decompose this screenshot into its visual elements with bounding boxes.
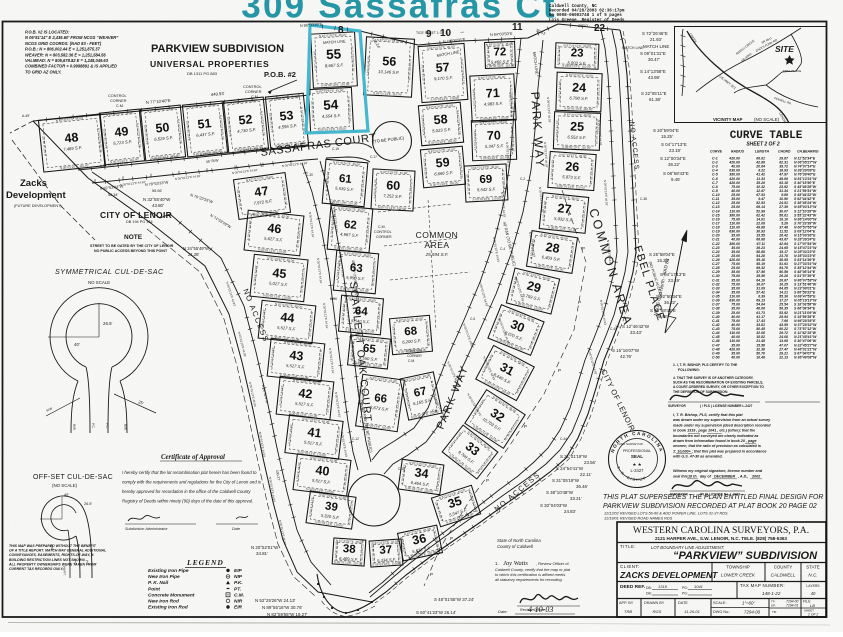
svg-text:P: P <box>486 478 489 483</box>
svg-text:P: P <box>450 536 453 541</box>
svg-text:7,252 S.F.: 7,252 S.F. <box>383 193 402 199</box>
svg-text:R/W: R/W <box>123 424 128 431</box>
svg-text:40.00: 40.00 <box>730 355 740 359</box>
svg-text:55.06′: 55.06′ <box>152 189 163 193</box>
svg-text:A 10°14′ 44.93′: A 10°14′ 44.93′ <box>555 120 560 141</box>
svg-text:36.22′: 36.22′ <box>664 300 676 305</box>
svg-text:N 82°59′55″W 19.27′: N 82°59′55″W 19.27′ <box>267 612 308 617</box>
svg-text:TITLE:: TITLE: <box>620 544 636 549</box>
svg-text:comply with the requirements a: comply with the requirements and regulat… <box>122 480 262 485</box>
svg-text:DATE: DATE <box>678 601 688 605</box>
svg-text:LAYERS: LAYERS <box>806 584 820 588</box>
svg-text:9.45′: 9.45′ <box>658 314 668 319</box>
svg-text:S 30°04′03″W: S 30°04′03″W <box>540 503 568 508</box>
svg-text:P.C.: P.C. <box>91 423 95 429</box>
svg-text:CONTROL: CONTROL <box>243 85 262 89</box>
svg-text:RADIUS: RADIUS <box>731 150 745 154</box>
svg-text:DB:: DB: <box>646 592 652 596</box>
svg-text:day of: day of <box>700 475 712 479</box>
svg-text:5,347 S.F.: 5,347 S.F. <box>485 143 504 149</box>
svg-text:1″=60′: 1″=60′ <box>742 601 754 606</box>
svg-text:PROFESSIONAL: PROFESSIONAL <box>623 449 651 453</box>
svg-text:40′: 40′ <box>64 493 69 497</box>
svg-text:40: 40 <box>315 463 331 479</box>
svg-text:LOWER CREEK: LOWER CREEK <box>721 573 756 578</box>
svg-text:SYMMETRICAL CUL-DE-SAC: SYMMETRICAL CUL-DE-SAC <box>55 267 164 276</box>
svg-text:22.11′: 22.11′ <box>580 472 592 477</box>
svg-text:S 12°00′34″E: S 12°00′34″E <box>660 156 686 161</box>
svg-text:57: 57 <box>435 60 450 75</box>
svg-text:7294-01: 7294-01 <box>786 604 799 608</box>
svg-text:Recorded 04/28/2003 02:36:1: Recorded 04/28/2003 02:36:17pm <box>549 9 625 14</box>
svg-text:148-1-22: 148-1-22 <box>762 591 781 596</box>
svg-text:C-10: C-10 <box>398 467 405 471</box>
svg-text:COMBINED FACTOR = 0.9998891 &: COMBINED FACTOR = 0.9998891 & IS APPLIED <box>25 64 117 69</box>
svg-text:Witness my original signature,: Witness my original signature, license n… <box>673 469 763 473</box>
svg-text:C.M.: C.M. <box>116 104 124 108</box>
svg-text:26: 26 <box>565 159 580 174</box>
svg-text:CURVE: CURVE <box>710 150 723 154</box>
svg-text:P.K.: P.K. <box>234 580 243 586</box>
svg-text:New Iron Pipe: New Iron Pipe <box>148 574 180 580</box>
svg-text:THIS MAP WAS PREPARED WITHOUT: THIS MAP WAS PREPARED WITHOUT THE BENEFI… <box>9 544 97 548</box>
svg-text:A COURT-ORDERED SURVEY, OR OTH: A COURT-ORDERED SURVEY, OR OTHER EXCEPTI… <box>673 385 764 389</box>
svg-text:I hereby certify that the lot: I hereby certify that the lot recombinat… <box>122 470 257 475</box>
svg-text:SCALE:: SCALE: <box>713 601 727 605</box>
svg-text:Zacks: Zacks <box>20 178 47 189</box>
svg-text:Certificate of Approval: Certificate of Approval <box>161 454 225 461</box>
svg-text:New Iron Rod: New Iron Rod <box>148 599 180 605</box>
svg-text:2 OF 2: 2 OF 2 <box>807 613 818 617</box>
svg-text:C-40: C-40 <box>610 327 617 331</box>
svg-text:SURVEYOR: SURVEYOR <box>668 404 687 408</box>
svg-text:→: → <box>459 29 465 35</box>
svg-text:boundaries not surveyed are cl: boundaries not surveyed are clearly indi… <box>673 434 758 438</box>
svg-text:2121 HARPER AVE., S.W. LE: 2121 HARPER AVE., S.W. LENOIR, N.C. TELE… <box>655 536 787 541</box>
svg-text:S 25°58′04″E: S 25°58′04″E <box>649 252 675 257</box>
svg-text:TICE SHEET 1 OF 2): TICE SHEET 1 OF 2) <box>416 31 448 35</box>
svg-text:all statutory requirements for: all statutory requirements for recording… <box>495 577 563 582</box>
svg-text:S 38°10′48″W: S 38°10′48″W <box>546 490 574 495</box>
svg-text:DECEMBER: DECEMBER <box>714 475 735 479</box>
svg-text:C.M.: C.M. <box>234 592 244 598</box>
svg-text:68: 68 <box>404 325 418 338</box>
svg-text:C.M.: C.M. <box>378 225 386 229</box>
svg-text:51: 51 <box>197 116 212 131</box>
svg-text:Date:: Date: <box>498 609 508 614</box>
svg-text:34: 34 <box>414 465 430 481</box>
svg-text:( / PLS ) LICENSE NUMBER L-242: ( / PLS ) LICENSE NUMBER L-2427 <box>700 404 753 408</box>
svg-text:66: 66 <box>373 392 387 406</box>
svg-text:4-10-03: 4-10-03 <box>528 605 553 614</box>
svg-text:DB:: DB: <box>646 586 652 590</box>
svg-text:seal this: seal this <box>673 475 688 479</box>
svg-text:BUILDING RESTRICTION LINES NOT: BUILDING RESTRICTION LINES NOT SHOWN. <box>9 558 86 562</box>
svg-text:24: 24 <box>572 80 586 94</box>
svg-text:22: 22 <box>594 23 606 34</box>
svg-text:P.O.B. #2 IS LOCATED:: P.O.B. #2 IS LOCATED: <box>25 30 70 35</box>
svg-text:FOLLOWING:: FOLLOWING: <box>678 368 700 372</box>
svg-text:N 20°52′01″W: N 20°52′01″W <box>251 545 279 550</box>
svg-text:CORNER: CORNER <box>110 99 127 103</box>
svg-text:39: 39 <box>324 500 338 514</box>
svg-text:50: 50 <box>155 120 170 135</box>
svg-text:STATE: STATE <box>806 565 820 570</box>
svg-text:S 08°58′43″E: S 08°58′43″E <box>650 308 676 313</box>
svg-text:A 10°14′ 44.93′: A 10°14′ 44.93′ <box>486 45 491 66</box>
svg-text:TOWNSHIP: TOWNSHIP <box>726 565 750 570</box>
svg-text:33.21′: 33.21′ <box>570 496 582 501</box>
svg-text:MATCH LINE: MATCH LINE <box>622 46 644 50</box>
svg-text:(FUTURE DEVELOPMENT): (FUTURE DEVELOPMENT) <box>14 204 62 208</box>
svg-text:Caldwell County, NC: Caldwell County, NC <box>549 4 597 9</box>
svg-text:1. I, T. R. BISHOP, PLS CERT: 1. I, T. R. BISHOP, PLS CERTIFY TO THE <box>673 363 738 367</box>
svg-text:hereby approved for recordatio: hereby approved for recordation in the o… <box>122 489 251 494</box>
svg-text:5,542 S.F.: 5,542 S.F. <box>477 186 496 192</box>
svg-text:, A.D.,: , A.D., <box>737 475 748 479</box>
svg-text:SHEET 2 OF 2: SHEET 2 OF 2 <box>746 142 780 148</box>
svg-text:CHORD: CHORD <box>778 150 791 154</box>
svg-text:S 21°01′19″W: S 21°01′19″W <box>560 454 588 459</box>
svg-text:43: 43 <box>289 348 304 363</box>
svg-text:7294-00: 7294-00 <box>744 610 761 615</box>
svg-text:LEGEND: LEGEND <box>186 558 224 567</box>
svg-text:A 10°14′ 44.93′: A 10°14′ 44.93′ <box>556 45 561 66</box>
svg-text:S 15°16′07″W: S 15°16′07″W <box>612 348 640 353</box>
svg-text:L-2427: L-2427 <box>630 468 644 473</box>
svg-text:23.19′: 23.19′ <box>669 148 681 153</box>
svg-text:S 31°05′19″W: S 31°05′19″W <box>552 478 580 483</box>
svg-text:4,983 S.F.: 4,983 S.F. <box>484 101 503 107</box>
svg-text:(NO SCALE): (NO SCALE) <box>754 117 780 122</box>
svg-text:C-12: C-12 <box>352 437 359 441</box>
svg-text:N 32°55′40″W: N 32°55′40″W <box>143 197 171 202</box>
svg-text:70: 70 <box>487 128 501 142</box>
svg-text:WEAVER: N = 803,582.36 E = 1,2: WEAVER: N = 803,582.36 E = 1,251,584.56 <box>25 52 106 57</box>
svg-text:TRB: TRB <box>624 609 632 614</box>
svg-text:37: 37 <box>379 544 393 557</box>
svg-text:ZACKS DEVELOPMENT: ZACKS DEVELOPMENT <box>619 570 718 580</box>
svg-text:P: P <box>578 300 581 305</box>
svg-text:23: 23 <box>570 47 583 59</box>
svg-text:WESTERN CAROLINA SURVEYORS, P.: WESTERN CAROLINA SURVEYORS, P.A. <box>633 525 809 536</box>
svg-text:CH.BEARING: CH.BEARING <box>797 150 819 154</box>
svg-text:S 24°54′41″W: S 24°54′41″W <box>556 466 584 471</box>
svg-text:53: 53 <box>279 108 294 123</box>
svg-text:11: 11 <box>512 22 523 33</box>
svg-text:DB 1311 PG 883: DB 1311 PG 883 <box>187 71 218 76</box>
svg-text:85.10′: 85.10′ <box>578 24 589 28</box>
svg-text:1: 10,000+ ; that this plat wa: 1: 10,000+ ; that this plat was prepared… <box>673 449 767 453</box>
svg-text:1319: 1319 <box>658 584 668 589</box>
svg-text:44: 44 <box>280 310 295 325</box>
svg-text:TO GRID AZ ONLY.: TO GRID AZ ONLY. <box>25 69 62 74</box>
svg-text:EIP: EIP <box>234 568 243 574</box>
svg-text:CORNER: CORNER <box>245 90 262 94</box>
svg-text:42: 42 <box>298 386 313 401</box>
svg-text:“PARKVIEW” SUBDIVISION: “PARKVIEW” SUBDIVISION <box>673 550 818 562</box>
svg-text:DEED REF.: DEED REF. <box>620 584 645 590</box>
svg-text:Registry of Deeds within ninet: Registry of Deeds within ninety (90) day… <box>122 499 253 504</box>
svg-text:S 20°59′04″E: S 20°59′04″E <box>653 128 679 133</box>
svg-text:S 08°58′43″E: S 08°58′43″E <box>663 171 689 176</box>
svg-text:LENGTH: LENGTH <box>755 150 769 154</box>
svg-text:C.M.: C.M. <box>408 359 415 363</box>
svg-text:was drawn under my supervision: was drawn under my supervision from an a… <box>673 418 771 422</box>
svg-text:CURVE TABLE: CURVE TABLE <box>730 130 803 142</box>
svg-text:56.34′: 56.34′ <box>108 193 119 197</box>
svg-text:A-49′: A-49′ <box>22 114 30 118</box>
svg-text:State of North Carolina: State of North Carolina <box>497 538 541 543</box>
svg-text:P. K. Nail: P. K. Nail <box>148 580 169 586</box>
svg-text:65: 65 <box>362 343 377 356</box>
svg-text:47: 47 <box>254 184 270 200</box>
svg-text:RGS: RGS <box>653 609 662 614</box>
svg-text:★ ★: ★ ★ <box>632 462 642 467</box>
svg-text:I, T. R. Bishop, PLS, certify: I, T. R. Bishop, PLS, certify that this … <box>673 413 743 417</box>
svg-text:N 52°25′26″W 24.13′: N 52°25′26″W 24.13′ <box>255 598 296 603</box>
svg-text:CONTROL: CONTROL <box>108 94 127 98</box>
svg-text:CORNER: CORNER <box>376 235 392 239</box>
svg-text:S 04°17′13″E: S 04°17′13″E <box>661 142 687 147</box>
svg-text:12/19/01 REVISED ROAD NAMES RD: 12/19/01 REVISED ROAD NAMES RDS <box>604 517 673 521</box>
svg-text:NO SCALE: NO SCALE <box>88 280 110 285</box>
svg-text:Lois Greene, Register of Deeds: Lois Greene, Register of Deeds <box>549 18 625 23</box>
svg-text:S 22°05′11″E: S 22°05′11″E <box>641 91 667 96</box>
svg-text:P.O.B.: N = 806,002.44 E = 1,2: P.O.B.: N = 806,002.44 E = 1,251,875.37 <box>25 47 101 52</box>
svg-text:43.80′: 43.80′ <box>152 203 164 208</box>
svg-text:(NO SCALE): (NO SCALE) <box>52 483 78 488</box>
svg-text:TB:: TB: <box>772 610 777 614</box>
svg-text:C-44: C-44 <box>560 437 567 441</box>
svg-text:DRAWN BY: DRAWN BY <box>644 601 665 605</box>
svg-text:36.46′: 36.46′ <box>576 484 588 489</box>
svg-text:EIR: EIR <box>234 605 243 611</box>
svg-text:THIS PLAT SUPERSEDES THE PLAN: THIS PLAT SUPERSEDES THE PLAN ENTITLED F… <box>603 494 823 501</box>
svg-text:N 89°55′16″W 30.76′: N 89°55′16″W 30.76′ <box>262 605 303 610</box>
svg-text:N.C.: N.C. <box>808 573 817 578</box>
svg-text:PARKVIEW SUBDIVISION RECORDED: PARKVIEW SUBDIVISION RECORDED AT PLAT BO… <box>603 503 817 510</box>
svg-text:UNIVERSAL PROPERTIES: UNIVERSAL PROPERTIES <box>150 59 269 69</box>
svg-text:59: 59 <box>435 155 450 170</box>
svg-text:OF:: OF: <box>771 604 776 608</box>
svg-text:15.25′: 15.25′ <box>657 258 669 263</box>
svg-text:23.56′: 23.56′ <box>584 460 596 465</box>
svg-text:61.38′: 61.38′ <box>649 97 661 102</box>
svg-text:EBEL PLACE: EBEL PLACE <box>783 69 801 73</box>
svg-text:41: 41 <box>307 425 323 441</box>
svg-text:C-4: C-4 <box>500 247 505 251</box>
svg-text:SITE: SITE <box>775 44 794 54</box>
svg-text:4. THAT THE SURVEY IS OF ANOT: 4. THAT THE SURVEY IS OF ANOTHER CATEGOR… <box>673 376 754 380</box>
svg-text:NO PUBLIC ACCESS BEYOND THIS P: NO PUBLIC ACCESS BEYOND THIS POINT <box>94 249 168 253</box>
svg-text:ALL PROPERTY OWNERSHIPS WERE T: ALL PROPERTY OWNERSHIPS WERE TAKEN FROM <box>8 562 96 566</box>
svg-text:C-17: C-17 <box>370 155 377 159</box>
svg-text:PG:: PG: <box>682 592 688 596</box>
svg-text:64: 64 <box>354 305 368 318</box>
svg-text:P: P <box>582 246 585 251</box>
svg-text:N 24°55′49″W: N 24°55′49″W <box>183 246 209 251</box>
svg-text:27: 27 <box>557 201 572 216</box>
svg-text:40′: 40′ <box>74 342 80 347</box>
svg-text:24.83′: 24.83′ <box>564 509 576 514</box>
svg-text:with G.S. 47-30 as amended.: with G.S. 47-30 as amended. <box>673 455 723 459</box>
svg-text:AREA: AREA <box>424 240 449 250</box>
svg-text:63: 63 <box>349 262 363 275</box>
svg-text:N 06°51′14″ E 2,436.60′ FROM N: N 06°51′14″ E 2,436.60′ FROM NCGS “WEAVE… <box>25 35 119 40</box>
svg-text:40: 40 <box>811 591 816 596</box>
svg-text:6,790 S.F.: 6,790 S.F. <box>569 95 588 101</box>
svg-text:VALMEAD: N = 805,678.82 E = 1,: VALMEAD: N = 805,678.82 E = 1,248,049.63 <box>25 58 109 63</box>
svg-text:CITY OF LENOIR: CITY OF LENOIR <box>100 210 172 220</box>
svg-text:CONVEYANCES, EASEMENTS, RIGHTS: CONVEYANCES, EASEMENTS, RIGHTS-OF-WAY, & <box>9 553 94 557</box>
svg-text:S 14°13′58″E: S 14°13′58″E <box>640 69 666 74</box>
svg-text:NIR: NIR <box>234 599 243 605</box>
svg-text:P: P <box>430 572 433 577</box>
svg-text:6,552 S.F.: 6,552 S.F. <box>567 134 586 140</box>
svg-text:C-30: C-30 <box>306 173 313 177</box>
svg-text:2002: 2002 <box>751 475 761 479</box>
svg-text:8,667 S.F.: 8,667 S.F. <box>325 62 344 68</box>
svg-text:drawn from information found i: drawn from information found in book 20 … <box>673 439 757 443</box>
svg-text:NIP: NIP <box>234 574 243 580</box>
svg-text:TAX MAP NUMBER:: TAX MAP NUMBER: <box>740 583 785 588</box>
svg-text:NCGS GRID COORDS: (NAD 83 - FE: NCGS GRID COORDS: (NAD 83 - FEET) <box>25 41 102 46</box>
svg-text:Point: Point <box>148 586 160 592</box>
svg-text:SUCH AS THE RECOMBINATION OF E: SUCH AS THE RECOMBINATION OF EXISTING PA… <box>673 381 763 385</box>
svg-text:1.: 1. <box>495 561 499 566</box>
svg-text:43.98′: 43.98′ <box>648 75 660 80</box>
svg-text:R/W: R/W <box>72 424 77 431</box>
svg-text:SEAL: SEAL <box>631 454 643 459</box>
svg-text:OFF-SET CUL-DE-SAC: OFF-SET CUL-DE-SAC <box>33 474 113 481</box>
svg-text:Development: Development <box>6 190 66 201</box>
svg-text:STREET TO BE GATED BY THE CITY: STREET TO BE GATED BY THE CITY OF LENOIR <box>90 244 174 248</box>
svg-text:10.46: 10.46 <box>756 355 765 359</box>
svg-text:34.81′: 34.81′ <box>256 551 268 556</box>
svg-text:38: 38 <box>342 543 356 556</box>
svg-text:PG:: PG: <box>682 586 688 590</box>
svg-text:58: 58 <box>433 112 448 127</box>
svg-text:S 60°41′23″W 26.14′: S 60°41′23″W 26.14′ <box>416 610 456 615</box>
svg-text:CURRENT TAX RECORDS ONLY.: CURRENT TAX RECORDS ONLY. <box>9 567 63 571</box>
svg-text:30.47′: 30.47′ <box>648 57 660 62</box>
svg-text:Jay Watts: Jay Watts <box>503 560 528 567</box>
svg-text:CORNER: CORNER <box>407 354 422 358</box>
svg-text:LB: LB <box>810 603 815 608</box>
svg-text:COUNTY: COUNTY <box>774 565 793 570</box>
svg-text:C-26: C-26 <box>330 297 337 301</box>
svg-text:PT.: PT. <box>234 586 241 592</box>
svg-text:28: 28 <box>545 240 561 256</box>
svg-text:S 09°01′31″E: S 09°01′31″E <box>640 51 666 56</box>
svg-text:60: 60 <box>386 178 401 193</box>
svg-text:15.25′: 15.25′ <box>661 134 673 139</box>
svg-text:VICINITY MAP: VICINITY MAP <box>713 117 743 122</box>
svg-text:S 12°50′34″E: S 12°50′34″E <box>656 294 682 299</box>
svg-text:CLIENT:: CLIENT: <box>620 564 640 569</box>
svg-text:8: 8 <box>338 25 344 36</box>
svg-text:23.19′: 23.19′ <box>668 278 680 283</box>
svg-text:P.C.: P.C. <box>105 423 109 429</box>
svg-text:N 36°48′08″W: N 36°48′08″W <box>794 355 817 359</box>
svg-text:A 10°14′ 44.93′: A 10°14′ 44.93′ <box>473 130 478 151</box>
svg-text:LAND SURVEYOR: LAND SURVEYOR <box>617 442 643 446</box>
svg-text:21.28′: 21.28′ <box>188 252 199 257</box>
svg-text:A 10°14′ 44.93′: A 10°14′ 44.93′ <box>557 81 562 102</box>
svg-text:P: P <box>524 424 527 429</box>
svg-text:S 72°26′46″E: S 72°26′46″E <box>642 31 668 36</box>
svg-text:25,594 S.F.: 25,594 S.F. <box>425 252 449 257</box>
svg-text:Subdivision Administrator: Subdivision Administrator <box>125 527 168 531</box>
svg-text:COMMON: COMMON <box>416 230 459 240</box>
svg-text:in book 1319 , page 1041 , et: in book 1319 , page 1041 , etc.) (other)… <box>673 429 755 433</box>
svg-text:48: 48 <box>64 130 79 145</box>
svg-text:9.45′: 9.45′ <box>671 177 681 182</box>
svg-text:26.5′: 26.5′ <box>84 502 92 506</box>
svg-text:62: 62 <box>343 219 357 232</box>
svg-text:21.93′: 21.93′ <box>650 37 662 42</box>
svg-text:49: 49 <box>114 124 129 139</box>
svg-text:C-18: C-18 <box>332 147 339 151</box>
svg-text:P.O.B. #2: P.O.B. #2 <box>264 70 296 79</box>
svg-text:4,554 S.F.: 4,554 S.F. <box>322 113 341 119</box>
svg-text:S 12°46′42″W: S 12°46′42″W <box>622 324 650 329</box>
svg-text:Date: Date <box>232 527 240 531</box>
svg-text:CONTROL: CONTROL <box>374 230 392 234</box>
svg-text:OF A TITLE REPORT. MATCH MAY: OF A TITLE REPORT. MATCH MAY GENERAL ADD… <box>9 549 106 553</box>
svg-text:C-6: C-6 <box>470 317 475 321</box>
svg-text:, Review Officer of: , Review Officer of <box>536 561 569 566</box>
svg-text:Existing Iron Rod: Existing Iron Rod <box>148 605 189 611</box>
svg-text:MATCH LINE: MATCH LINE <box>643 44 669 49</box>
svg-text:P: P <box>558 368 561 373</box>
svg-text:PARKVIEW SUBDIVISION: PARKVIEW SUBDIVISION <box>151 43 284 55</box>
svg-text:71: 71 <box>485 86 500 101</box>
svg-text:18 th: 18 th <box>688 475 697 479</box>
svg-text:69: 69 <box>479 174 492 187</box>
svg-text:ononec; that the ratio of prec: ononec; that the ratio of precision as c… <box>673 444 761 448</box>
svg-text:46: 46 <box>267 221 282 236</box>
svg-text:1041: 1041 <box>694 584 703 589</box>
svg-text:Concrete Monument: Concrete Monument <box>148 592 195 598</box>
svg-text:S 04°17′13″E: S 04°17′13″E <box>660 272 686 277</box>
svg-text:42.76′: 42.76′ <box>620 354 632 359</box>
svg-text:No 9008-06003748 1 of 5 p: No 9008-06003748 1 of 5 pages <box>549 13 622 18</box>
svg-text:C-8: C-8 <box>432 409 437 413</box>
svg-text:11-26-01: 11-26-01 <box>684 609 700 614</box>
svg-text:S 48°01′55″W 37.24′: S 48°01′55″W 37.24′ <box>434 597 474 602</box>
svg-text:54: 54 <box>323 97 339 113</box>
svg-text:45: 45 <box>272 266 287 281</box>
svg-text:25: 25 <box>570 120 584 134</box>
svg-text:36.22′: 36.22′ <box>668 162 680 167</box>
svg-text:12/12/02 REVISED LOTS 56-60 &: 12/12/02 REVISED LOTS 56-60 & ADD POWER … <box>604 512 728 516</box>
svg-text:APP. BY: APP. BY <box>619 601 634 605</box>
svg-text:26.5′: 26.5′ <box>103 321 113 326</box>
svg-text:DWG No.:: DWG No.: <box>713 610 730 614</box>
svg-text:55: 55 <box>326 46 342 62</box>
svg-text:CALDWELL: CALDWELL <box>771 573 796 578</box>
svg-text:C-2: C-2 <box>520 177 525 181</box>
svg-text:made under my supervision (dee: made under my supervision (deed descript… <box>673 423 771 427</box>
svg-text:52: 52 <box>238 112 253 127</box>
svg-text:County of Caldwell: County of Caldwell <box>497 544 534 549</box>
svg-text:33.43′: 33.43′ <box>630 330 642 335</box>
svg-text:C-38: C-38 <box>640 197 647 201</box>
svg-text:C-50: C-50 <box>712 355 720 359</box>
svg-text:72: 72 <box>493 46 506 58</box>
